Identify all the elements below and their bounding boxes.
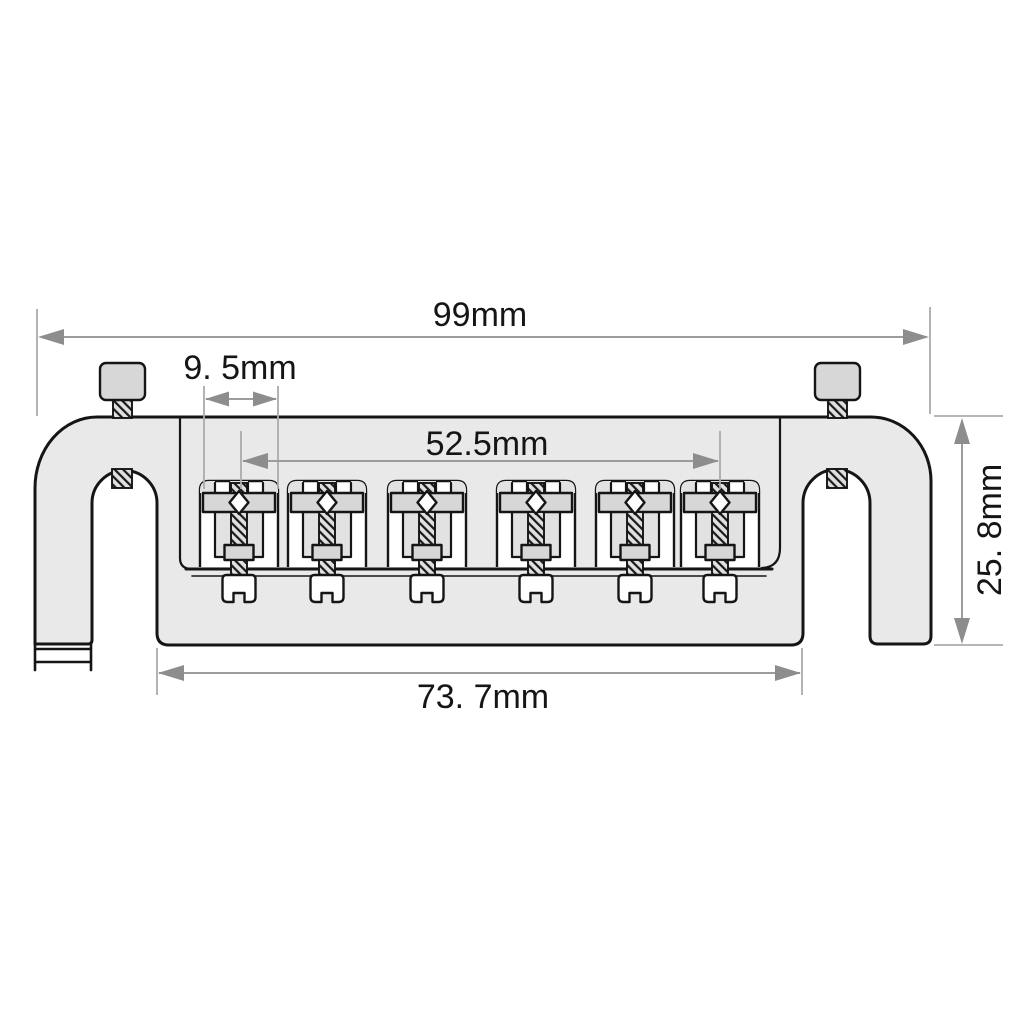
arrowhead-top bbox=[954, 418, 970, 444]
bridge-dimension-diagram: 99mm 9. 5mm 52.5mm 25. 8mm bbox=[0, 0, 1020, 1020]
dimension-label-body-height: 25. 8mm bbox=[971, 464, 1009, 596]
arrowhead-right bbox=[775, 665, 801, 681]
arrowhead-left bbox=[158, 665, 184, 681]
dimension-label-saddle-span: 52.5mm bbox=[426, 425, 549, 463]
left-leg-extension bbox=[35, 644, 91, 670]
diagram-page: 99mm 9. 5mm 52.5mm 25. 8mm bbox=[0, 0, 1020, 1020]
arrowhead-bottom bbox=[954, 618, 970, 644]
left-post-notch-thread bbox=[112, 469, 132, 488]
right-post-notch-thread bbox=[827, 469, 847, 488]
dimension-label-overall-width: 99mm bbox=[433, 296, 527, 334]
dimension-label-saddle-pitch: 9. 5mm bbox=[183, 349, 296, 387]
dimension-label-mounting-width: 73. 7mm bbox=[417, 678, 549, 716]
arrowhead-left bbox=[38, 329, 64, 345]
arrowhead-left bbox=[205, 392, 229, 407]
arrowhead-right bbox=[903, 329, 929, 345]
dimension-mounting-width: 73. 7mm bbox=[157, 648, 802, 716]
right-post-knob bbox=[815, 363, 860, 400]
dimension-overall-width: 99mm bbox=[37, 296, 930, 416]
arrowhead-right bbox=[253, 392, 277, 407]
left-post-knob bbox=[100, 363, 145, 400]
dimension-body-height: 25. 8mm bbox=[934, 416, 1009, 645]
